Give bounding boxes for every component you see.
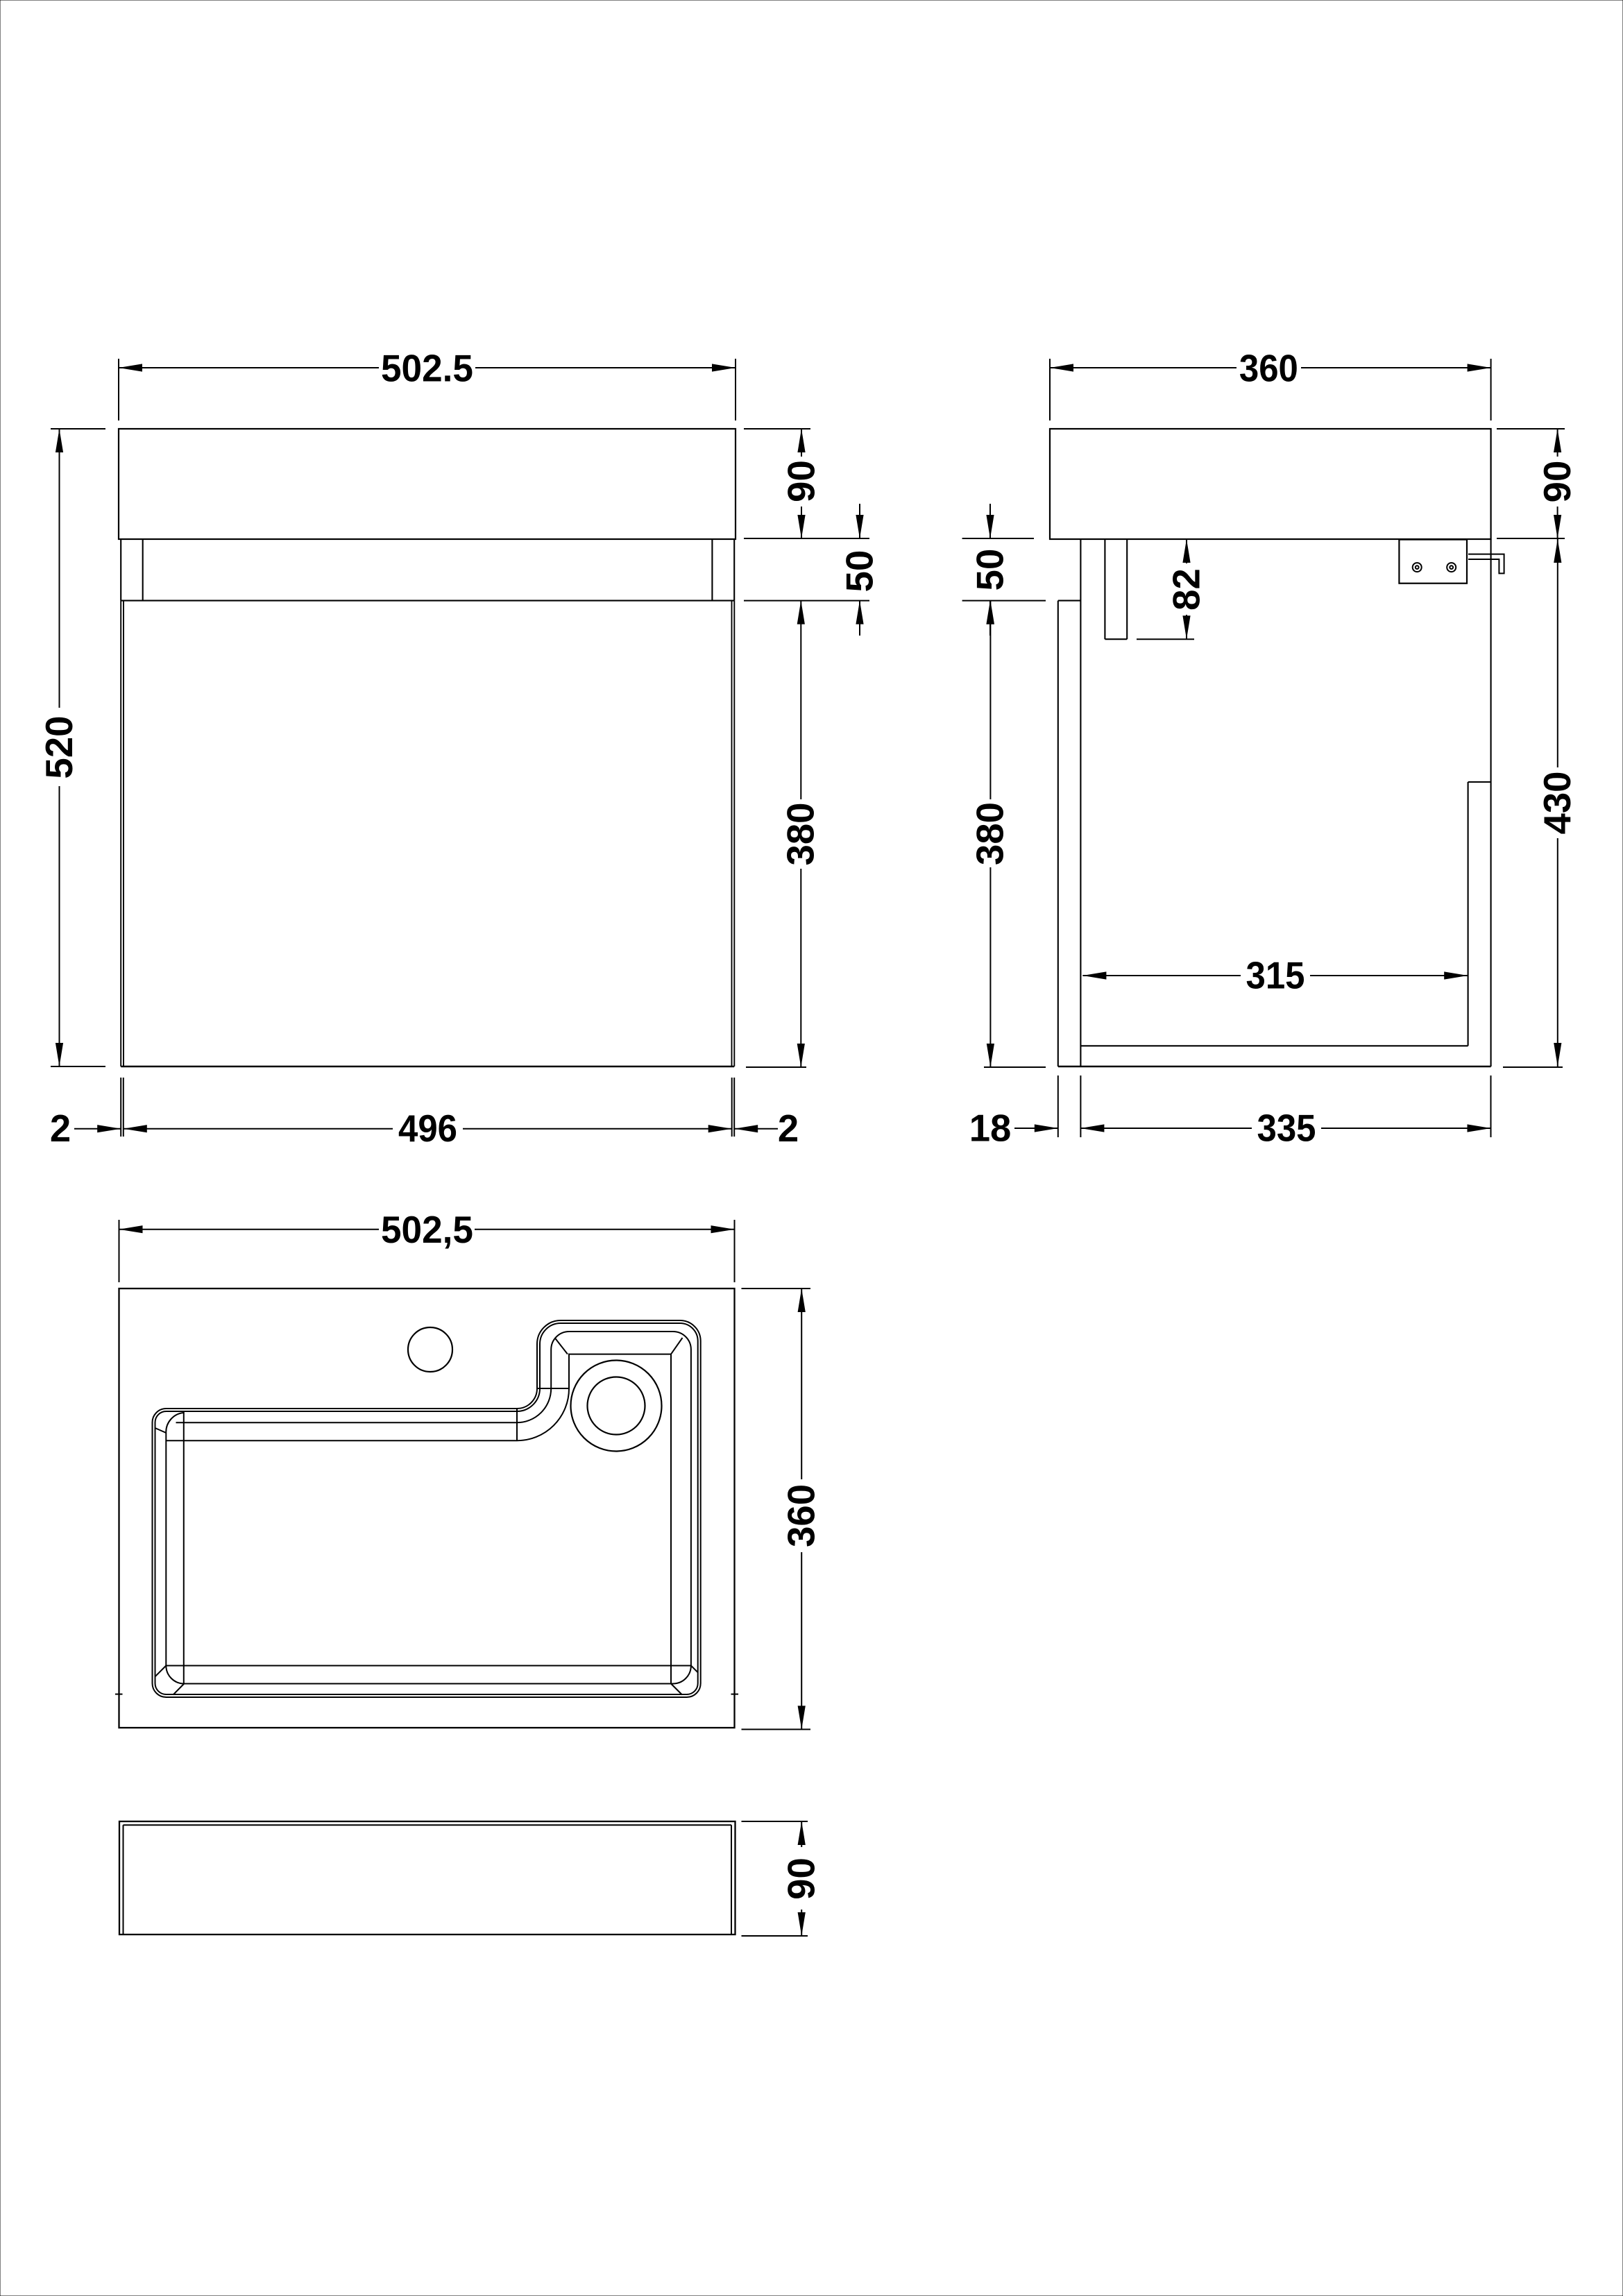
svg-text:2: 2 [778,1107,799,1150]
svg-text:18: 18 [969,1107,1012,1149]
svg-text:502,5: 502,5 [381,1209,473,1251]
svg-text:335: 335 [1257,1107,1316,1149]
svg-text:380: 380 [969,802,1012,865]
svg-text:82: 82 [1165,568,1207,611]
svg-text:496: 496 [398,1107,457,1150]
svg-text:90: 90 [1536,461,1579,503]
svg-text:2: 2 [50,1107,71,1150]
svg-text:430: 430 [1536,772,1579,835]
svg-text:502.5: 502.5 [381,347,473,389]
svg-text:90: 90 [780,1857,822,1900]
svg-text:90: 90 [780,460,822,502]
svg-text:315: 315 [1246,954,1305,996]
svg-text:360: 360 [1239,347,1298,389]
svg-text:50: 50 [838,550,881,593]
svg-text:50: 50 [969,549,1011,591]
svg-text:380: 380 [780,803,822,866]
svg-text:360: 360 [780,1484,822,1547]
svg-text:520: 520 [38,716,80,779]
